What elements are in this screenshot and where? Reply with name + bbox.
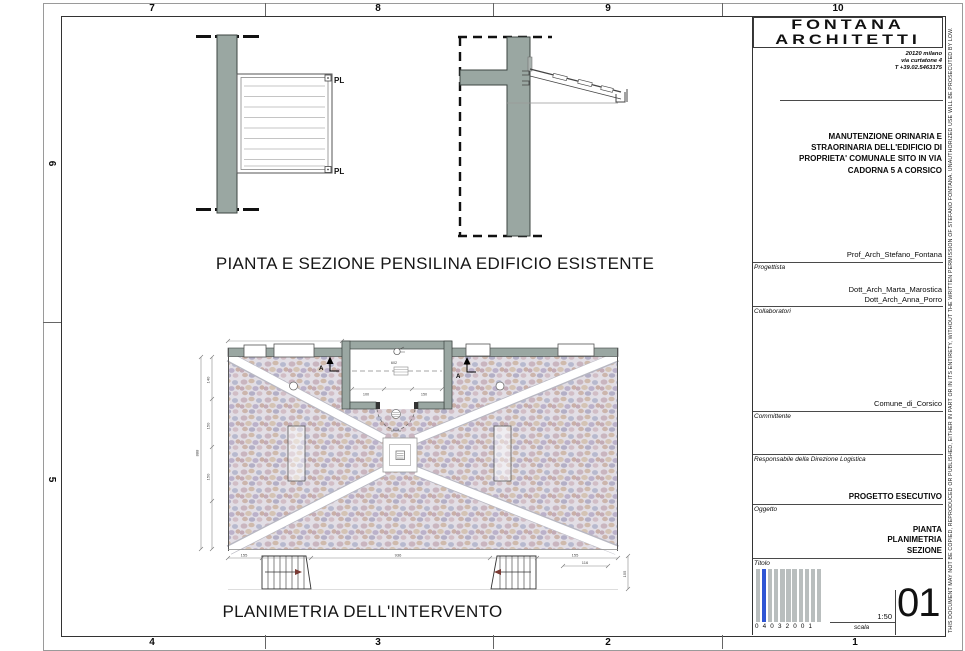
pl-label: PL: [334, 76, 344, 85]
barcode-bar: [805, 569, 809, 622]
titleblock-separator: [752, 16, 753, 635]
stair-right: [491, 556, 536, 589]
collaboratori-label: Collaboratori: [754, 308, 791, 315]
dim-label: 100: [363, 393, 369, 397]
planimetria-plan: 602 100 150 A A: [195, 339, 631, 591]
grid-tick: [43, 322, 61, 323]
progettista-value: Prof_Arch_Stefano_Fontana: [754, 250, 942, 260]
stair-left: [262, 556, 311, 589]
committente-value: Comune_di_Corsico: [754, 399, 942, 409]
barcode-bar: [799, 569, 803, 622]
scale-value: 1:50: [858, 612, 892, 621]
titleblock-rule: [753, 306, 943, 307]
collaboratori-line: Dott_Arch_Anna_Porro: [754, 295, 942, 305]
address-line: T +39.02.5463175: [790, 65, 942, 72]
barcode-digits: 0 4 0 3 2 0 0 1: [755, 623, 827, 630]
grid-number-bottom: 3: [366, 636, 390, 649]
titleblock-rule: [753, 262, 943, 263]
barcode-bar-blue: [762, 569, 766, 622]
firm-name-line2: ARCHITETTI: [724, 33, 965, 48]
section-marker-label: A: [319, 366, 324, 372]
dim-label: 155: [572, 553, 579, 558]
address-line: via curtatone 4: [790, 58, 942, 65]
titolo-value: PIANTA PLANIMETRIA SEZIONE: [754, 525, 942, 556]
barcode-bar: [792, 569, 796, 622]
drawings-canvas: PL PL: [61, 16, 752, 635]
pensilina-section: [458, 37, 627, 236]
barcode-bar: [811, 569, 815, 622]
grid-tick: [722, 3, 723, 16]
barcode-bar: [756, 569, 760, 622]
project-title-line: PROPRIETA' COMUNALE SITO IN VIA: [756, 153, 942, 164]
scale-label: scala: [854, 624, 869, 631]
firm-name-line1: FONTANA: [724, 18, 965, 33]
barcode: [756, 569, 823, 622]
barcode-bar: [774, 569, 778, 622]
titleblock-rule: [753, 454, 943, 455]
grid-number-top: 7: [140, 2, 164, 15]
barcode-bar: [768, 569, 772, 622]
barcode-bar: [786, 569, 790, 622]
titleblock-rule: [753, 411, 943, 412]
grid-tick: [722, 635, 723, 649]
pensilina-plan: PL PL: [196, 35, 344, 213]
sheet-number: 01: [897, 580, 940, 626]
grid-tick: [265, 3, 266, 16]
titleblock-rule: [895, 590, 896, 635]
committente-label: Committente: [754, 413, 791, 420]
barcode-bar: [817, 569, 821, 622]
dim-label: 150: [421, 393, 427, 397]
grid-tick: [265, 635, 266, 649]
copyright-disclaimer: THIS DOCUMENT MAY NOT BE COPIED, REPRODU…: [948, 18, 954, 633]
firm-logo: FONTANA ARCHITETTI: [753, 17, 943, 48]
firm-address: 20120 milano via curtatone 4 T +39.02.54…: [790, 51, 942, 73]
grid-tick: [493, 635, 494, 649]
oggetto-value: PROGETTO ESECUTIVO: [754, 492, 942, 502]
dim-label: 116: [582, 560, 589, 565]
section-marker-label: A: [456, 374, 461, 380]
caption-pianta-sezione: PIANTA E SEZIONE PENSILINA EDIFICIO ESIS…: [215, 254, 655, 274]
dim-label: 155: [622, 570, 627, 577]
dim-label: 936: [395, 553, 402, 558]
titleblock-rule: [753, 504, 943, 505]
grid-number-bottom: 2: [596, 636, 620, 649]
collaboratori-value: Dott_Arch_Marta_Marostica Dott_Arch_Anna…: [754, 285, 942, 304]
titolo-line: SEZIONE: [754, 546, 942, 556]
drawing-sheet: 7 8 9 10 4 3 2 1 6 5 THIS DOCUMENT MAY N…: [0, 0, 965, 651]
dim-label: 602: [391, 361, 397, 365]
grid-number-top: 8: [366, 2, 390, 15]
dim-label: 150: [206, 422, 211, 429]
titolo-label: Titolo: [754, 560, 770, 567]
grid-tick: [493, 3, 494, 16]
address-line: 20120 milano: [790, 51, 942, 58]
dim-label: 150: [206, 473, 211, 480]
barcode-bar: [780, 569, 784, 622]
titolo-line: PLANIMETRIA: [754, 535, 942, 545]
dim-label: 155: [241, 553, 248, 558]
grid-number-top: 10: [826, 2, 850, 15]
responsabile-label: Responsabile della Direzione Logistica: [754, 456, 866, 463]
project-title-line: CADORNA 5 A CORSICO: [756, 165, 942, 176]
dim-label: 888: [195, 449, 200, 456]
grid-number-bottom: 4: [140, 636, 164, 649]
titleblock-rule: [780, 100, 943, 101]
caption-planimetria: PLANIMETRIA DELL'INTERVENTO: [220, 602, 505, 622]
grid-number-left: 5: [45, 471, 58, 488]
collaboratori-line: Dott_Arch_Marta_Marostica: [754, 285, 942, 295]
project-title-line: STRAORINARIA DELL'EDIFICIO DI: [756, 142, 942, 153]
grid-number-left: 6: [45, 155, 58, 172]
dim-label: 140: [206, 376, 211, 383]
progettista-label: Progettista: [754, 264, 785, 271]
pl-label: PL: [334, 167, 344, 176]
project-title: MANUTENZIONE ORINARIA E STRAORINARIA DEL…: [756, 131, 942, 176]
oggetto-label: Oggetto: [754, 506, 777, 513]
titleblock-rule: [830, 622, 895, 623]
titleblock-rule: [753, 558, 943, 559]
grid-number-bottom: 1: [843, 636, 867, 649]
grid-number-top: 9: [596, 2, 620, 15]
titolo-line: PIANTA: [754, 525, 942, 535]
project-title-line: MANUTENZIONE ORINARIA E: [756, 131, 942, 142]
